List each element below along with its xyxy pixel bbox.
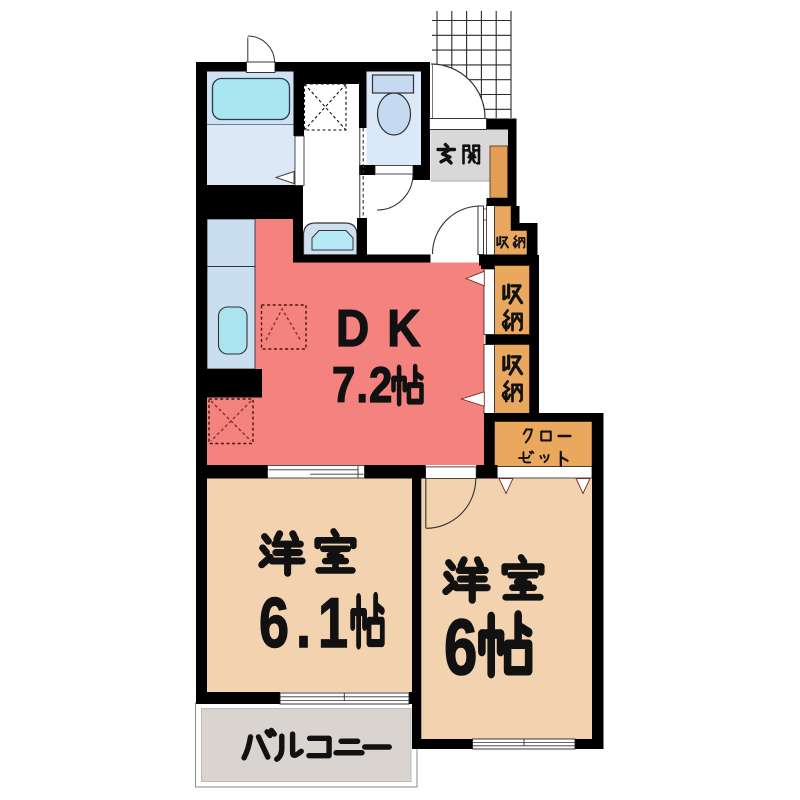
svg-text:7.2: 7.2: [332, 356, 393, 412]
svg-text:6.1: 6.1: [259, 584, 355, 663]
svg-text:DK: DK: [336, 300, 438, 357]
svg-text:6: 6: [444, 602, 477, 691]
